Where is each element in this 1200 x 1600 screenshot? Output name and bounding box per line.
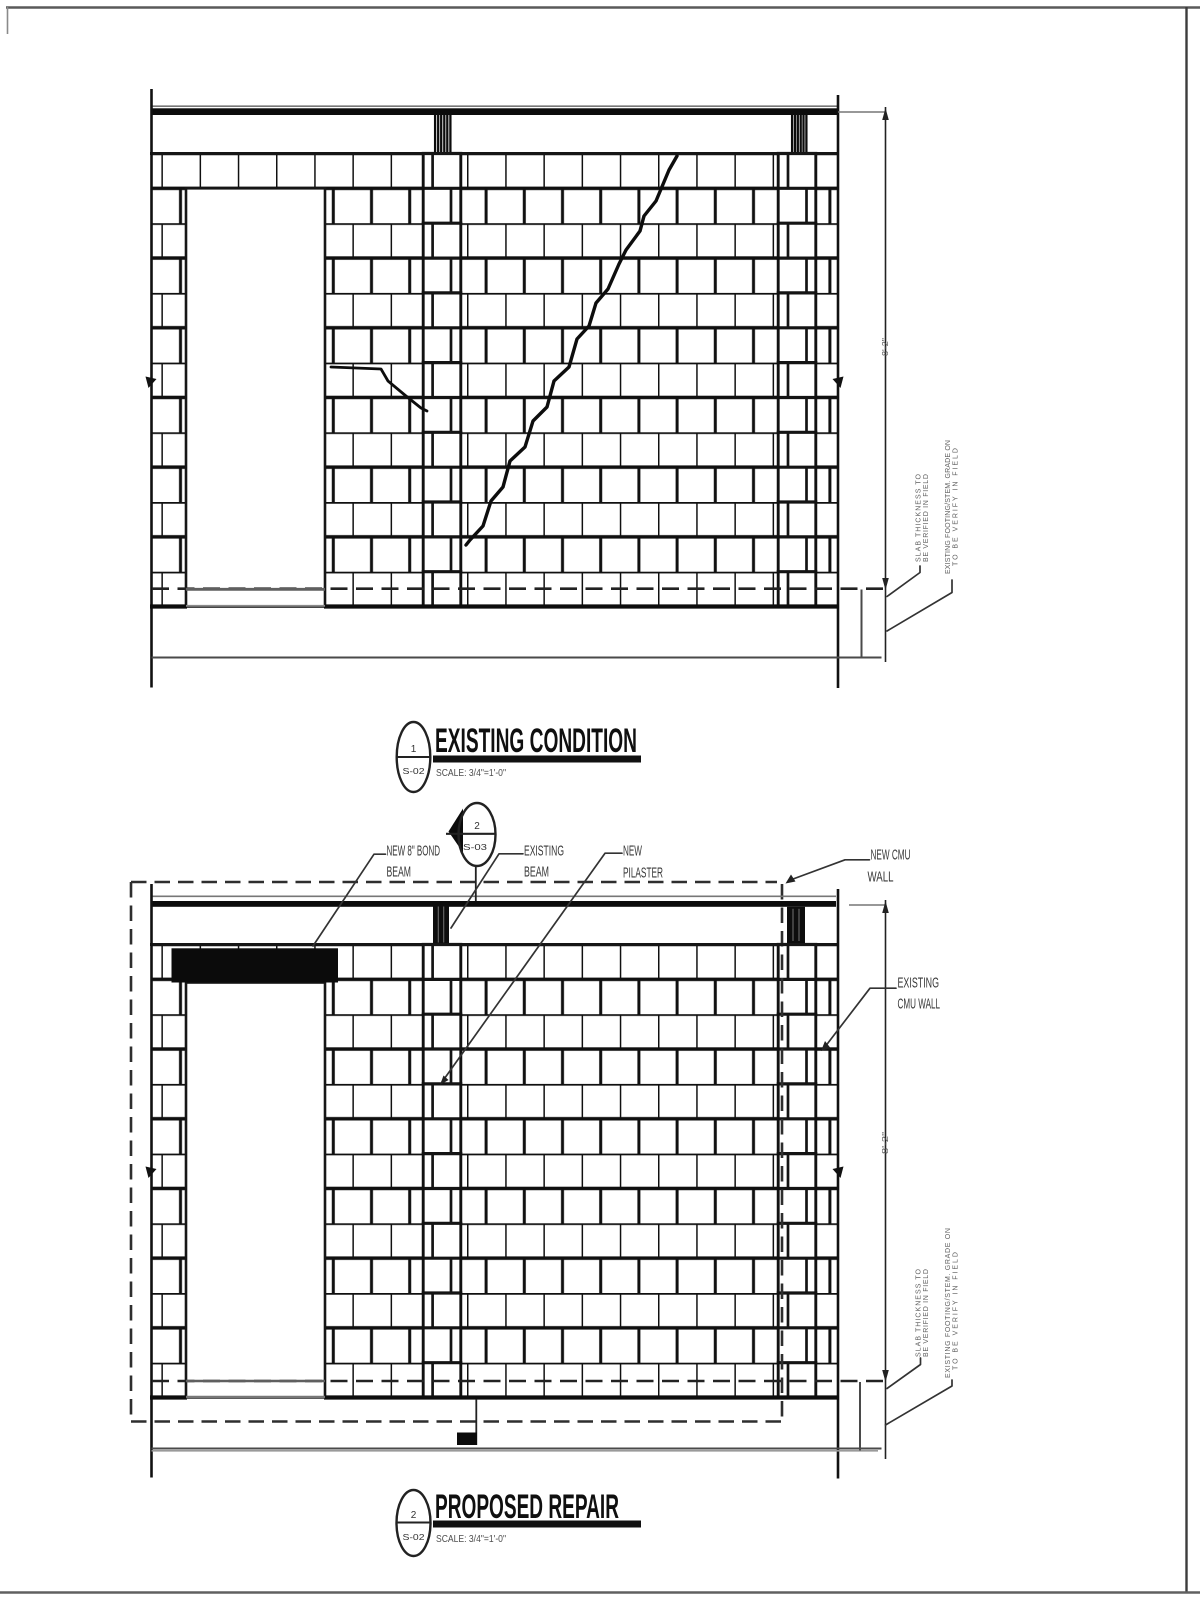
svg-text:PROPOSED REPAIR: PROPOSED REPAIR xyxy=(435,1488,619,1526)
svg-text:NEW CMU: NEW CMU xyxy=(871,848,911,864)
svg-text:SLAB THICKNESS TO: SLAB THICKNESS TO xyxy=(916,1268,923,1357)
svg-text:SCALE: 3/4"=1'-0": SCALE: 3/4"=1'-0" xyxy=(436,767,506,779)
svg-text:BEAM: BEAM xyxy=(387,865,412,881)
svg-text:S-03: S-03 xyxy=(463,842,487,852)
svg-text:WALL: WALL xyxy=(868,870,894,886)
svg-text:BE VERIFIED IN FIELD: BE VERIFIED IN FIELD xyxy=(923,1269,930,1357)
svg-text:NEW: NEW xyxy=(623,844,642,860)
svg-text:EXISTING: EXISTING xyxy=(524,844,564,860)
svg-text:8'-2": 8'-2" xyxy=(880,338,890,356)
svg-text:2: 2 xyxy=(411,1510,417,1521)
svg-text:CMU WALL: CMU WALL xyxy=(898,997,941,1013)
svg-text:NEW 8" BOND: NEW 8" BOND xyxy=(387,844,441,860)
svg-text:BE VERIFIED IN FIELD: BE VERIFIED IN FIELD xyxy=(923,474,930,562)
svg-text:EXISTING: EXISTING xyxy=(898,976,940,992)
svg-text:2: 2 xyxy=(474,821,480,832)
svg-text:1: 1 xyxy=(411,744,417,755)
svg-text:EXISTING FOOTING/STEM. GRADE O: EXISTING FOOTING/STEM. GRADE ON xyxy=(945,440,952,574)
svg-text:BEAM: BEAM xyxy=(524,865,549,881)
svg-text:EXISTING FOOTING/STEM. GRADE O: EXISTING FOOTING/STEM. GRADE ON xyxy=(945,1228,952,1378)
svg-text:SCALE: 3/4"=1'-0": SCALE: 3/4"=1'-0" xyxy=(436,1533,506,1545)
svg-text:8'-2": 8'-2" xyxy=(880,1132,890,1154)
svg-text:S-02: S-02 xyxy=(403,1532,425,1542)
svg-text:S-02: S-02 xyxy=(403,766,425,776)
svg-text:PILASTER: PILASTER xyxy=(623,866,663,882)
svg-text:SLAB THICKNESS TO: SLAB THICKNESS TO xyxy=(916,473,923,562)
svg-text:TO BE VERIFY IN FIELD: TO BE VERIFY IN FIELD xyxy=(953,448,960,566)
svg-text:TO BE VERIFY IN FIELD: TO BE VERIFY IN FIELD xyxy=(953,1252,960,1370)
svg-text:EXISTING CONDITION: EXISTING CONDITION xyxy=(435,722,637,760)
